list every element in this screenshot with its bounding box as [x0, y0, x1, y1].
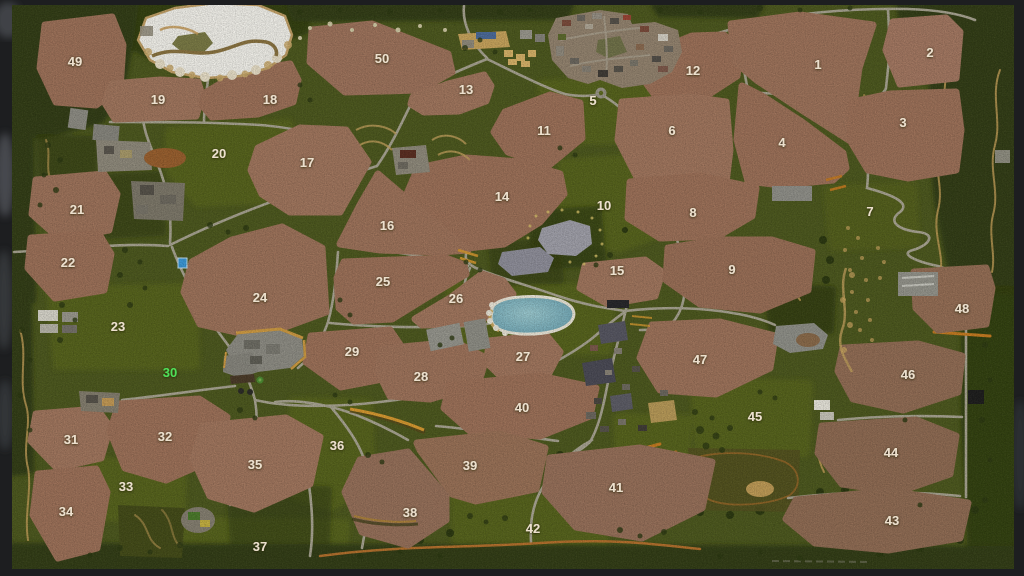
svg-text:3: 3	[899, 115, 906, 130]
svg-text:26: 26	[449, 291, 463, 306]
svg-text:45: 45	[748, 409, 762, 424]
svg-text:29: 29	[345, 344, 359, 359]
svg-text:36: 36	[330, 438, 344, 453]
svg-text:5: 5	[589, 93, 596, 108]
svg-text:11: 11	[537, 123, 551, 138]
svg-text:6: 6	[668, 123, 675, 138]
svg-text:25: 25	[376, 274, 390, 289]
svg-text:8: 8	[689, 205, 696, 220]
svg-text:48: 48	[955, 301, 969, 316]
svg-text:37: 37	[253, 539, 267, 554]
svg-text:20: 20	[212, 146, 226, 161]
svg-text:43: 43	[885, 513, 899, 528]
svg-text:39: 39	[463, 458, 477, 473]
svg-text:4: 4	[778, 135, 786, 150]
svg-text:44: 44	[884, 445, 899, 460]
svg-text:34: 34	[59, 504, 74, 519]
svg-text:21: 21	[70, 202, 84, 217]
svg-text:16: 16	[380, 218, 394, 233]
svg-text:31: 31	[64, 432, 78, 447]
svg-text:33: 33	[119, 479, 133, 494]
svg-text:13: 13	[459, 82, 473, 97]
svg-text:14: 14	[495, 189, 510, 204]
svg-text:9: 9	[728, 262, 735, 277]
svg-text:38: 38	[403, 505, 417, 520]
svg-text:41: 41	[609, 480, 623, 495]
svg-text:12: 12	[686, 63, 700, 78]
svg-text:35: 35	[248, 457, 262, 472]
svg-text:30: 30	[163, 365, 177, 380]
svg-text:50: 50	[375, 51, 389, 66]
svg-text:15: 15	[610, 263, 624, 278]
svg-text:42: 42	[526, 521, 540, 536]
svg-text:24: 24	[253, 290, 268, 305]
svg-text:10: 10	[597, 198, 611, 213]
svg-text:1: 1	[814, 57, 821, 72]
svg-text:18: 18	[263, 92, 277, 107]
svg-text:49: 49	[68, 54, 82, 69]
svg-text:22: 22	[61, 255, 75, 270]
svg-text:40: 40	[515, 400, 529, 415]
svg-text:7: 7	[866, 204, 873, 219]
svg-text:47: 47	[693, 352, 707, 367]
svg-text:19: 19	[151, 92, 165, 107]
svg-text:2: 2	[926, 45, 933, 60]
svg-text:28: 28	[414, 369, 428, 384]
svg-text:27: 27	[516, 349, 530, 364]
svg-text:32: 32	[158, 429, 172, 444]
svg-text:46: 46	[901, 367, 915, 382]
svg-text:23: 23	[111, 319, 125, 334]
svg-text:17: 17	[300, 155, 314, 170]
